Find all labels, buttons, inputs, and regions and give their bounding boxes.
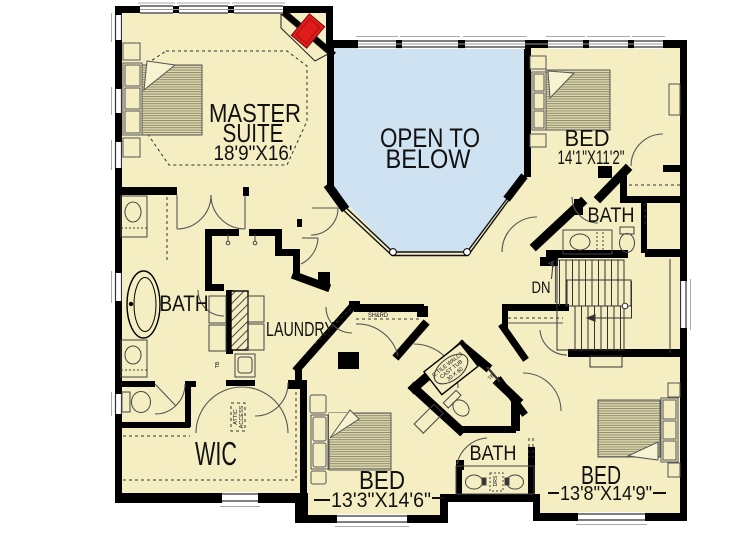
svg-text:SH&RD: SH&RD — [368, 313, 389, 319]
svg-text:BATH: BATH — [160, 291, 209, 316]
svg-text:BELOW: BELOW — [386, 144, 471, 174]
svg-text:LAUNDRY: LAUNDRY — [266, 319, 334, 341]
svg-text:WIC: WIC — [195, 435, 237, 472]
svg-text:DRS: DRS — [493, 475, 499, 486]
svg-text:18'9"X16': 18'9"X16' — [214, 142, 293, 165]
svg-text:14'1"X11'2": 14'1"X11'2" — [558, 148, 625, 169]
svg-text:BATH: BATH — [588, 204, 635, 227]
svg-text:13'8"X14'9": 13'8"X14'9" — [560, 483, 652, 505]
svg-text:TB: TB — [215, 361, 221, 368]
svg-text:DN: DN — [532, 278, 551, 297]
svg-text:BATH: BATH — [470, 442, 517, 465]
svg-text:13'3"X14'6": 13'3"X14'6" — [331, 489, 431, 512]
svg-text:ACCESS: ACCESS — [239, 405, 245, 428]
